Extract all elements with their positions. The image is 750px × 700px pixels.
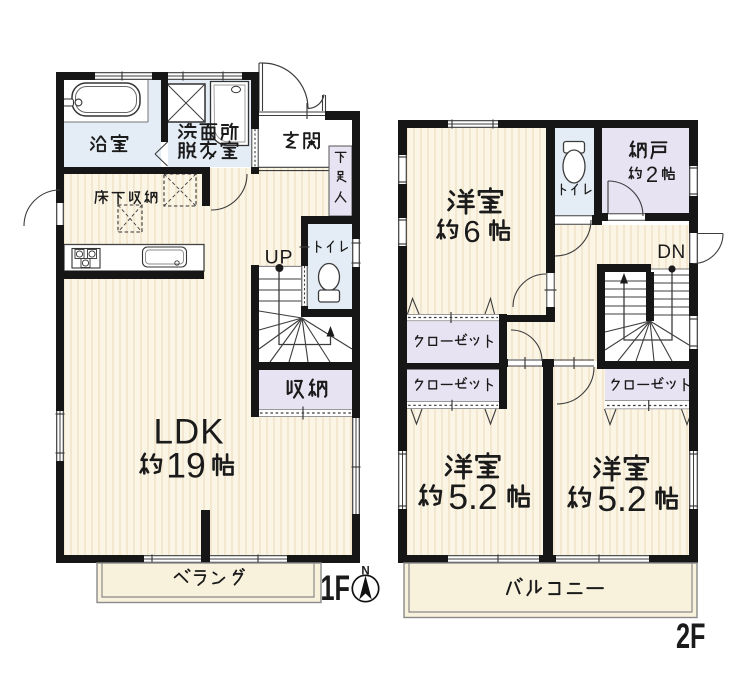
svg-text:2: 2 [646, 162, 658, 187]
svg-text:UP: UP [265, 247, 294, 269]
svg-text:6: 6 [463, 214, 480, 249]
svg-text:1F: 1F [321, 569, 351, 608]
svg-text:19: 19 [166, 446, 206, 486]
svg-text:2F: 2F [676, 617, 706, 656]
svg-text:5.2: 5.2 [597, 479, 646, 519]
svg-text:5.2: 5.2 [448, 477, 497, 517]
svg-text:DN: DN [657, 242, 685, 263]
svg-text:N: N [361, 566, 369, 578]
